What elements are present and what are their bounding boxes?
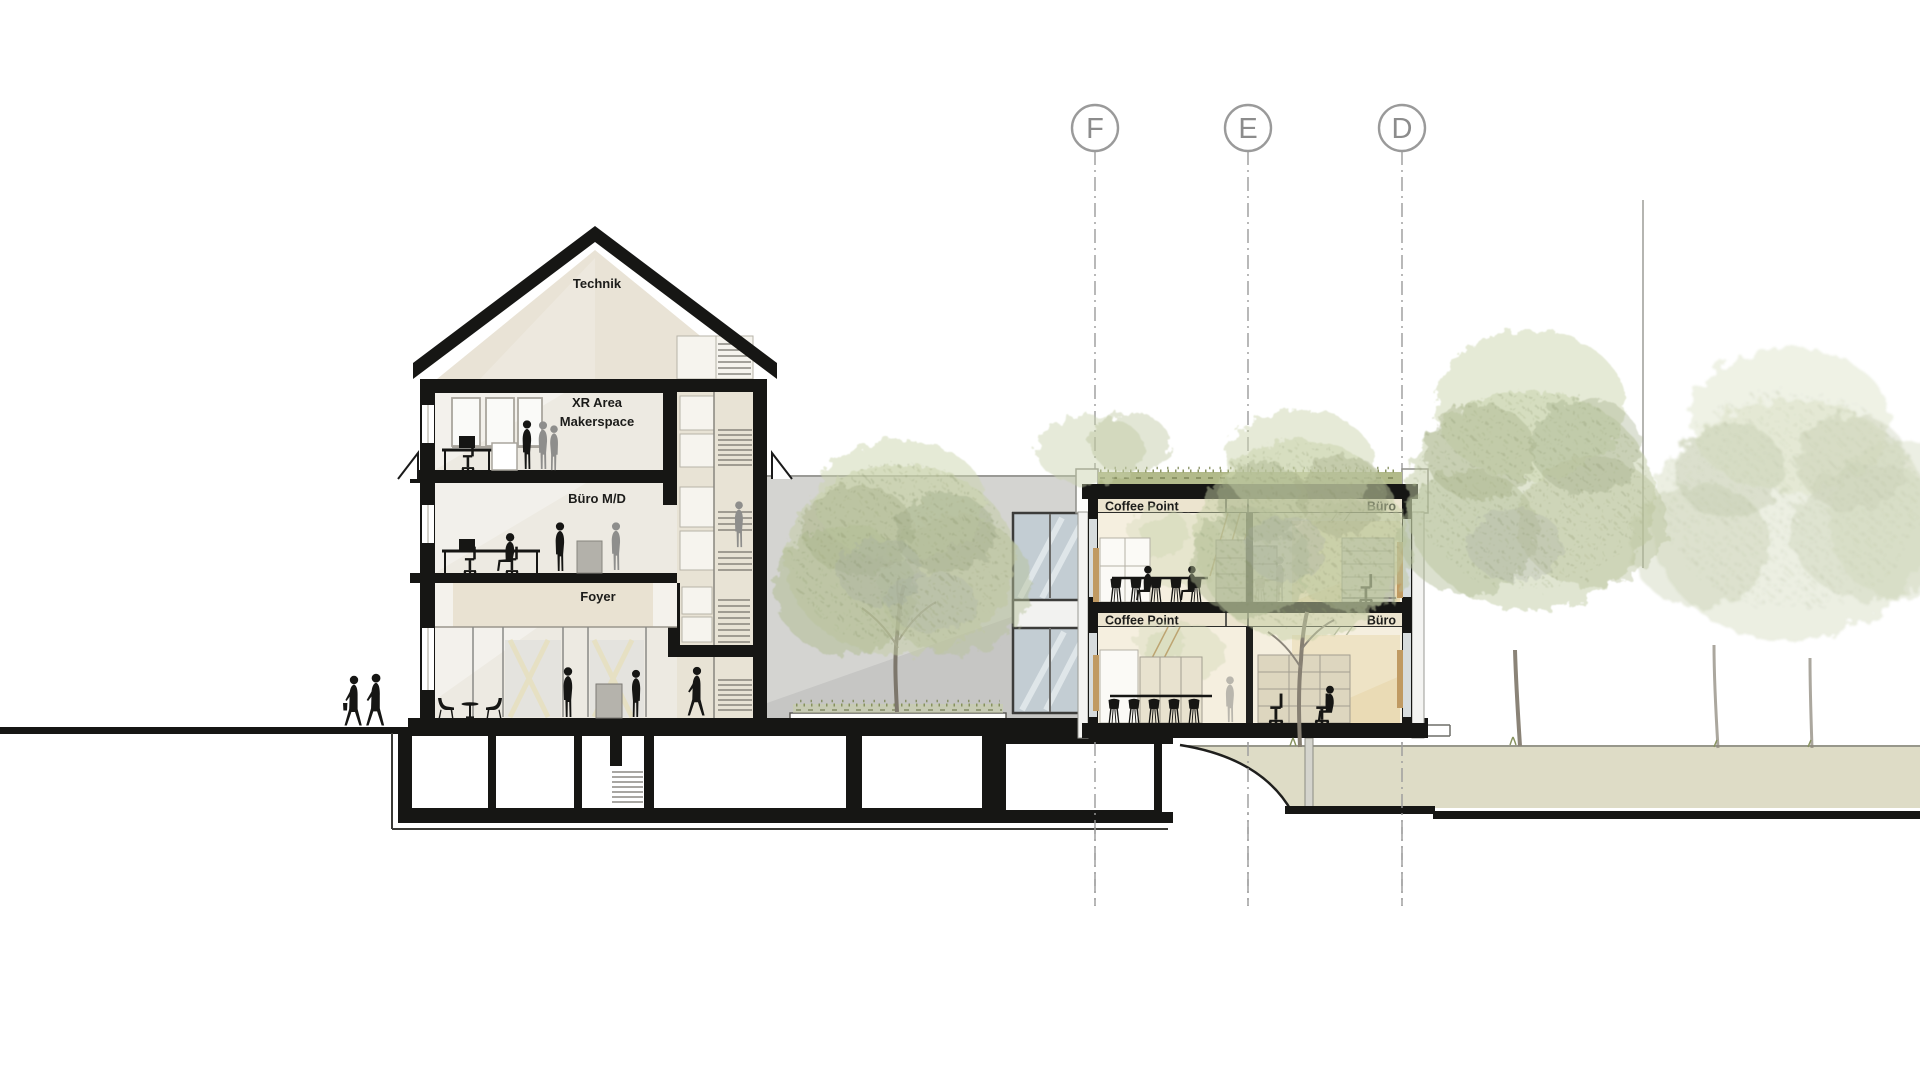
room-label-makerspace: Makerspace <box>560 414 634 429</box>
basement-room <box>1006 744 1154 810</box>
timber-post <box>1093 655 1099 711</box>
room-label-foyer: Foyer <box>580 589 615 604</box>
room-label-technik: Technik <box>573 276 622 291</box>
attic-floor-slab <box>420 379 758 393</box>
ground-slab <box>1082 723 1428 738</box>
right-exterior-wall <box>753 379 767 728</box>
timber-post <box>1093 548 1099 602</box>
sideboard <box>492 443 517 470</box>
stair-landing-slab <box>668 645 767 657</box>
partition-wall <box>1246 627 1253 723</box>
room-label-buero-lower: Büro <box>1367 614 1397 628</box>
cabinet-block <box>577 541 602 573</box>
grid-axis-D: D <box>1379 105 1425 151</box>
architectural-section-drawing: F E D <box>0 0 1920 1080</box>
reception-counter <box>596 684 622 718</box>
site-ground-right <box>1162 738 1920 819</box>
monitor <box>459 539 475 551</box>
basement-room <box>862 736 982 808</box>
room-label-buero-md: Büro M/D <box>568 491 626 506</box>
grid-axis-letter: F <box>1086 113 1104 145</box>
grid-axis-E: E <box>1225 105 1271 151</box>
basement-room <box>496 736 574 808</box>
kitchen-cabinet <box>1100 650 1138 723</box>
window <box>486 398 514 446</box>
room-label-xr-area: XR Area <box>572 395 623 410</box>
timber-post <box>1397 650 1403 708</box>
room-coffee-point-lower <box>1098 622 1402 723</box>
courtyard <box>767 440 1088 723</box>
basement <box>392 728 1173 829</box>
foyer-fascia <box>453 583 653 627</box>
support-post <box>1305 738 1313 808</box>
basement-room <box>412 736 488 808</box>
basement-stair-steps <box>612 772 643 802</box>
basement-room <box>654 736 846 808</box>
grid-axis-F: F <box>1072 105 1118 151</box>
staircase <box>663 392 767 718</box>
grid-axis-letter: E <box>1238 113 1257 145</box>
grid-axis-letter: D <box>1392 113 1413 145</box>
